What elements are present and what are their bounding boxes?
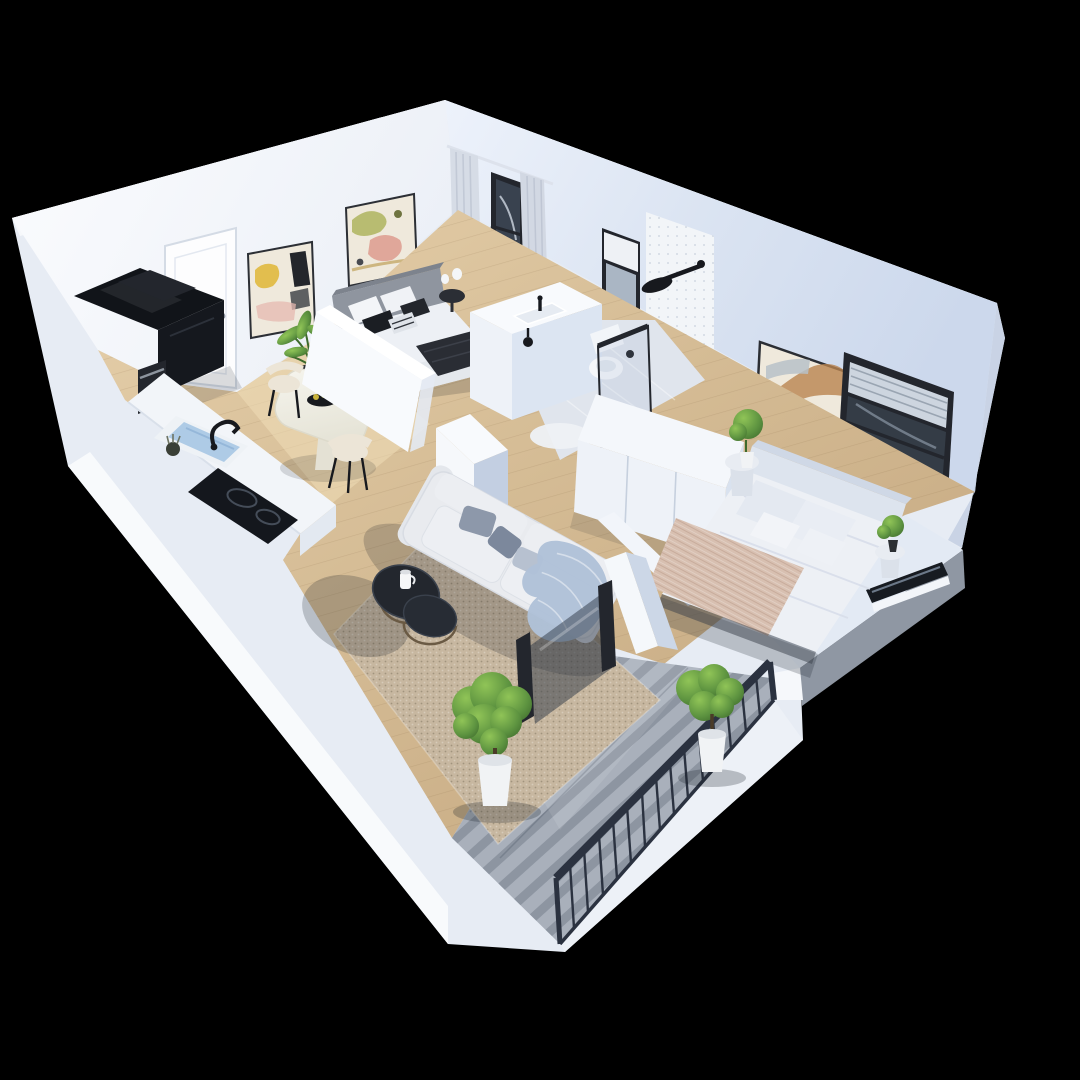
utensil-crock	[166, 442, 180, 456]
wall-lamp	[523, 337, 533, 347]
apartment-render	[0, 0, 1080, 1080]
render-canvas	[0, 0, 1080, 1080]
